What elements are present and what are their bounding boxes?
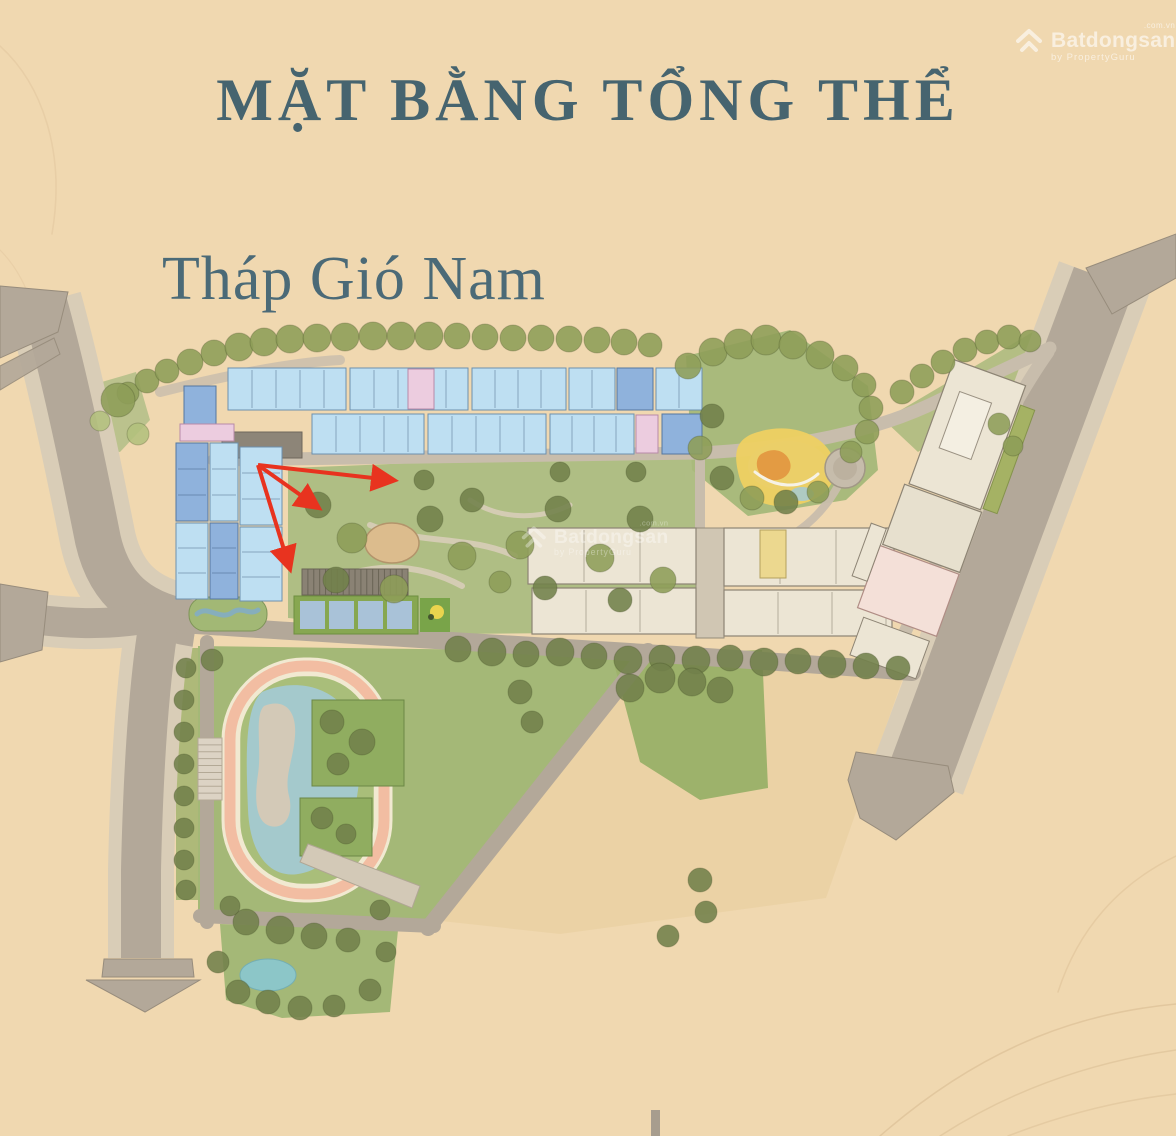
brand-house-icon <box>1014 28 1044 56</box>
brand-byline: by PropertyGuru <box>554 549 668 558</box>
site-plan-svg <box>0 0 1176 1136</box>
watermark-top-right: .com.vn Batdongsan by PropertyGuru <box>1014 22 1175 63</box>
brand-name: Batdongsan <box>1051 30 1175 51</box>
tower-label: Tháp Gió Nam <box>162 248 546 310</box>
plan-title: MẶT BẰNG TỔNG THỂ <box>216 70 959 130</box>
brand-house-icon <box>520 526 548 552</box>
watermark-center: .com.vn Batdongsan by PropertyGuru <box>520 520 668 557</box>
brand-name: Batdongsan <box>554 527 668 546</box>
brand-byline: by PropertyGuru <box>1051 53 1175 63</box>
site-plan: MẶT BẰNG TỔNG THỂ Tháp Gió Nam .com.vn B… <box>0 0 1176 1136</box>
